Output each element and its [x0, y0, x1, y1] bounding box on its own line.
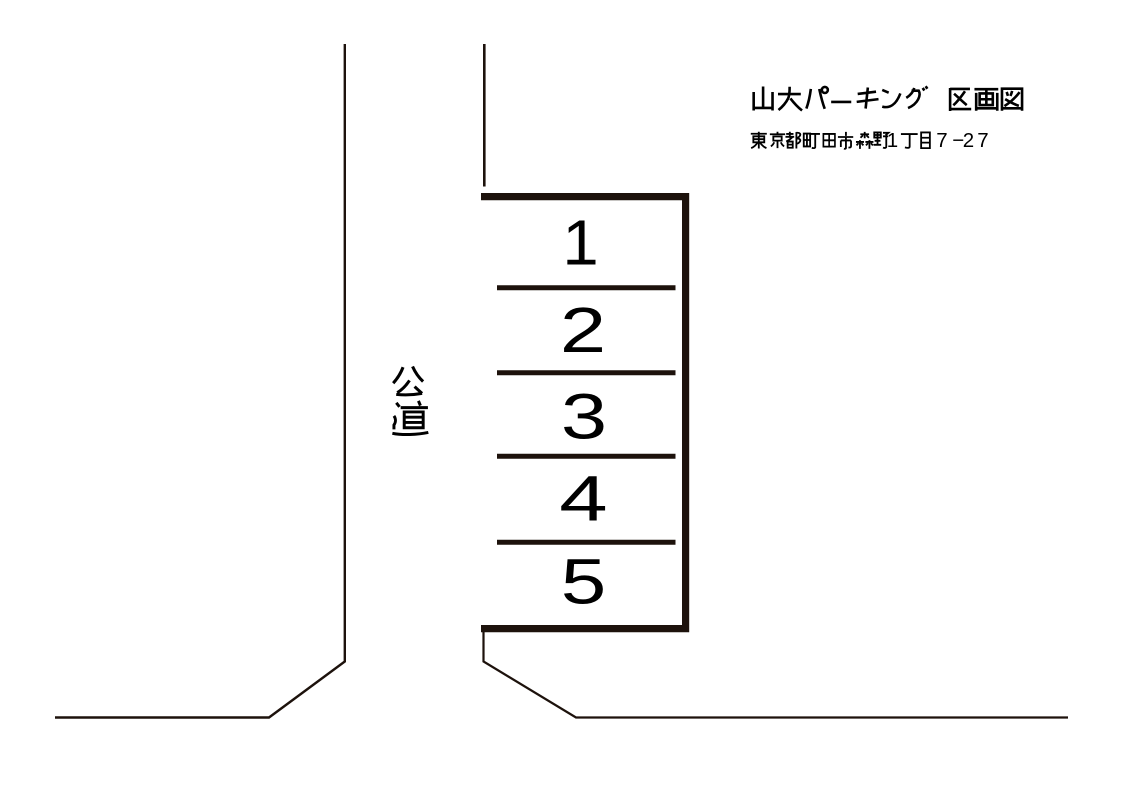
svg-text:7: 7 — [936, 129, 947, 152]
svg-text:7: 7 — [977, 129, 988, 152]
svg-text:2: 2 — [560, 294, 606, 366]
svg-text:1: 1 — [887, 129, 898, 152]
svg-text:1: 1 — [562, 206, 598, 278]
svg-text:4: 4 — [559, 464, 607, 535]
svg-text:3: 3 — [561, 381, 607, 453]
svg-text:2: 2 — [963, 129, 974, 152]
svg-text:5: 5 — [561, 545, 607, 617]
